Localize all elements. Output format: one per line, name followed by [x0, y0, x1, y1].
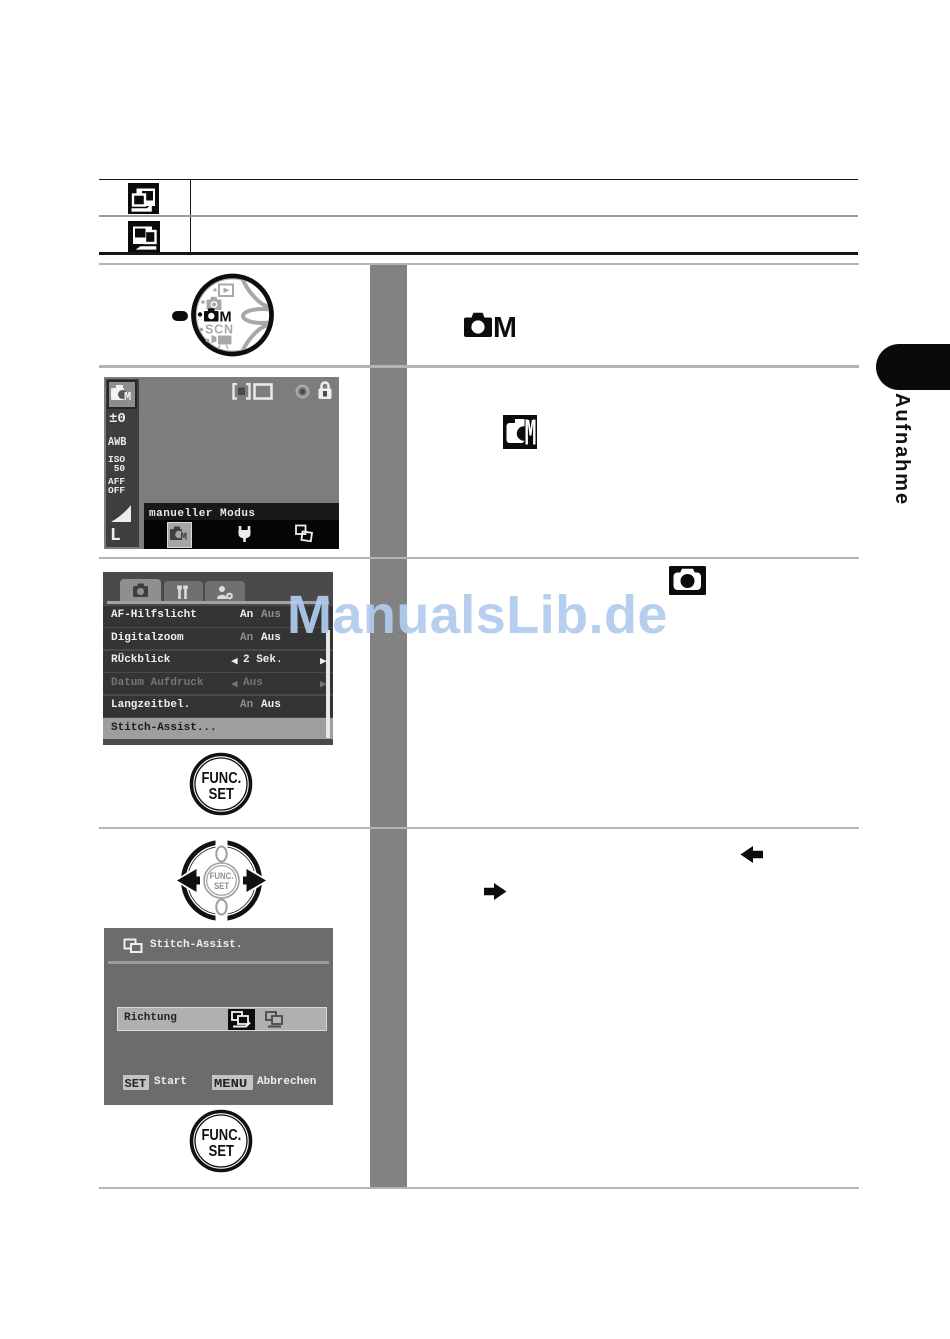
svg-text:M: M [124, 390, 131, 404]
svg-text:SET: SET [209, 1143, 235, 1160]
svg-text:SET: SET [209, 786, 235, 803]
svg-text:FUNC.: FUNC. [201, 770, 241, 787]
svg-text:M: M [493, 312, 515, 339]
svg-text:SCN: SCN [205, 323, 234, 337]
svg-text:M: M [181, 532, 188, 544]
svg-text:FUNC.: FUNC. [201, 1127, 241, 1144]
svg-text:SET: SET [214, 880, 230, 891]
